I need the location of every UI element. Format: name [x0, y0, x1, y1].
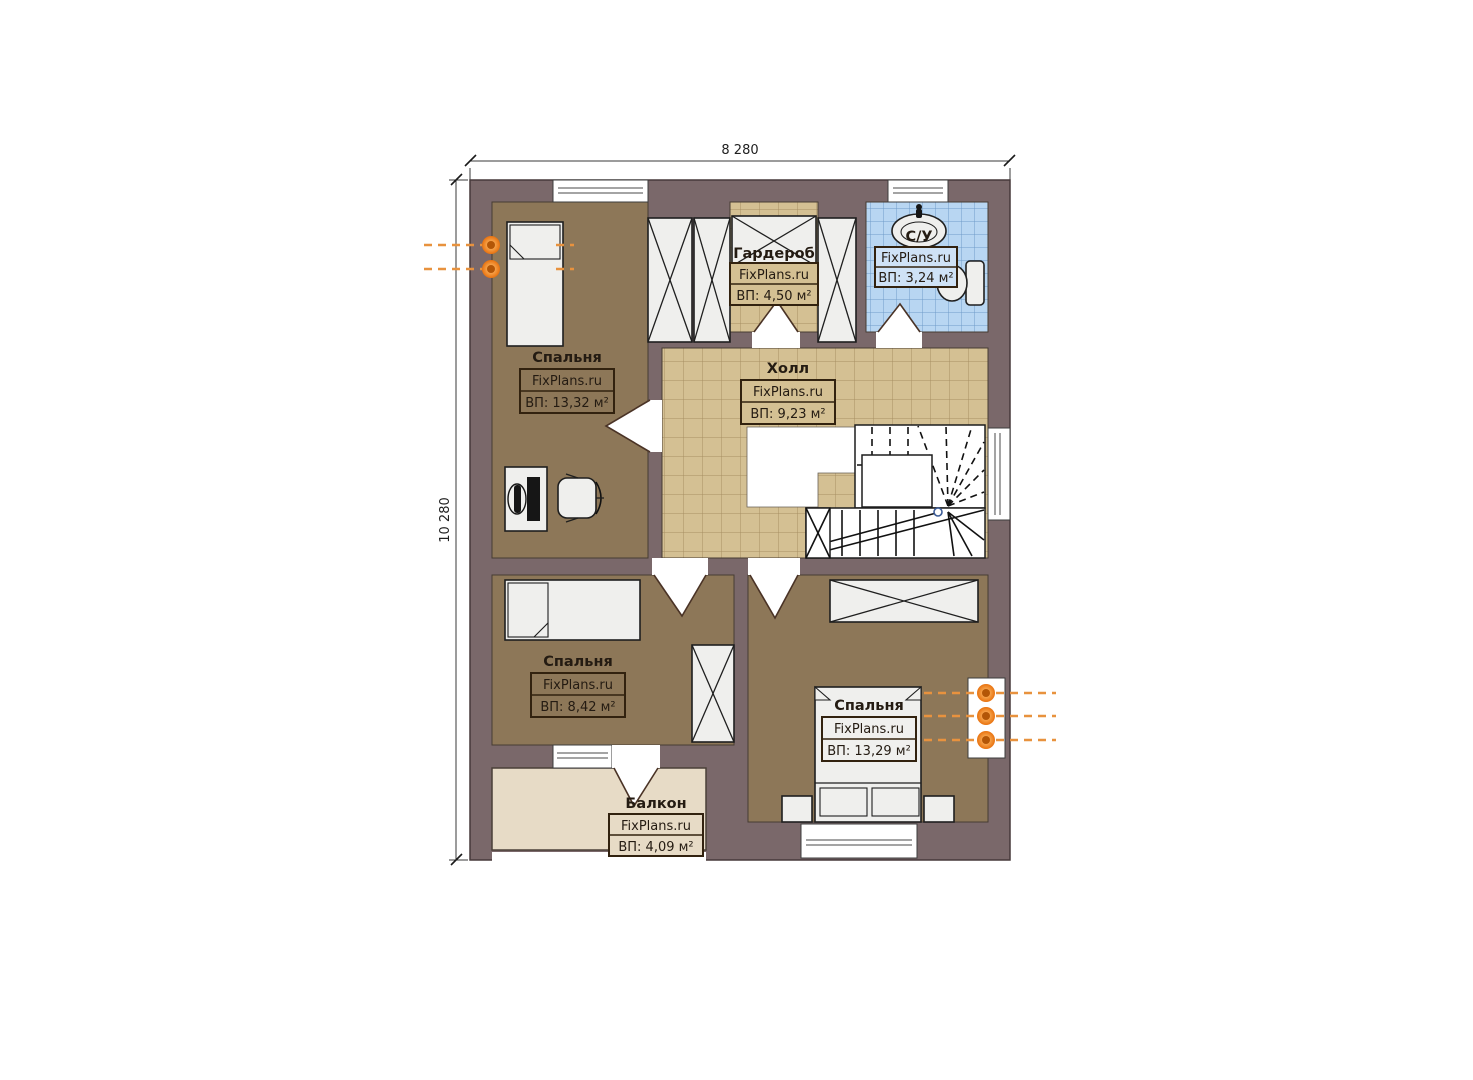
- room-label-bedroom-top-left: Спальня FixPlans.ru ВП: 13,32 м²: [520, 350, 614, 413]
- door-threshold: [752, 332, 800, 348]
- door-threshold: [652, 558, 708, 575]
- floor-plan-page: { "watermark": "FixPlans.ru", "dimension…: [0, 0, 1473, 1080]
- dimension-top: 8 280: [465, 143, 1015, 182]
- room-name: Гардероб: [733, 246, 814, 262]
- desk-icon: [505, 467, 547, 531]
- room-area: ВП: 13,29 м²: [827, 744, 911, 759]
- watermark: FixPlans.ru: [739, 268, 809, 283]
- room-area: ВП: 4,09 м²: [618, 840, 693, 855]
- door-threshold: [748, 558, 800, 575]
- dimension-width-label: 8 280: [721, 143, 758, 158]
- room-label-bedroom-bottom-left: Спальня FixPlans.ru ВП: 8,42 м²: [531, 654, 625, 717]
- nightstand-icon: [924, 796, 954, 822]
- room-area: ВП: 9,23 м²: [750, 407, 825, 422]
- dimension-left: 10 280: [438, 174, 468, 865]
- wardrobe-cabinet-icon: [830, 580, 978, 622]
- room-area: ВП: 4,50 м²: [736, 289, 811, 304]
- watermark: FixPlans.ru: [753, 385, 823, 400]
- wardrobe-cabinet-icon: [694, 218, 730, 342]
- dimension-height-label: 10 280: [438, 497, 453, 543]
- nightstand-icon: [782, 796, 812, 822]
- room-label-wardrobe: Гардероб FixPlans.ru ВП: 4,50 м²: [730, 246, 818, 305]
- room-label-bedroom-bottom-right: Спальня FixPlans.ru ВП: 13,29 м²: [822, 698, 916, 761]
- floor-plan-drawing: 8 280 10 280: [0, 0, 1473, 1080]
- watermark: FixPlans.ru: [834, 722, 904, 737]
- door-threshold: [876, 332, 922, 348]
- window-right-stairs: [988, 428, 1010, 520]
- room-name: Балкон: [625, 796, 686, 812]
- window-bottom-bedroom: [801, 824, 917, 858]
- room-name: Спальня: [532, 350, 602, 366]
- room-name: Спальня: [543, 654, 613, 670]
- door-threshold: [648, 400, 662, 452]
- watermark: FixPlans.ru: [621, 819, 691, 834]
- wardrobe-cabinet-icon: [648, 218, 692, 342]
- room-area: ВП: 3,24 м²: [878, 271, 953, 286]
- bed-single-icon: [505, 580, 640, 640]
- room-name: Холл: [767, 361, 809, 377]
- stair-post-icon: [934, 508, 942, 516]
- window-top-right: [888, 180, 948, 202]
- window-balcony: [553, 745, 612, 768]
- door-threshold: [612, 745, 660, 768]
- room-name: С/У: [905, 229, 932, 245]
- radiators-right: [924, 684, 1056, 749]
- room-area: ВП: 13,32 м²: [525, 396, 609, 411]
- watermark: FixPlans.ru: [543, 678, 613, 693]
- watermark: FixPlans.ru: [881, 251, 951, 266]
- watermark: FixPlans.ru: [532, 374, 602, 389]
- bed-single-icon: [507, 222, 563, 346]
- wardrobe-cabinet-icon: [692, 645, 734, 742]
- wardrobe-cabinet-icon: [818, 218, 856, 342]
- room-area: ВП: 8,42 м²: [540, 700, 615, 715]
- room-name: Спальня: [834, 698, 904, 714]
- window-top-left: [553, 180, 648, 202]
